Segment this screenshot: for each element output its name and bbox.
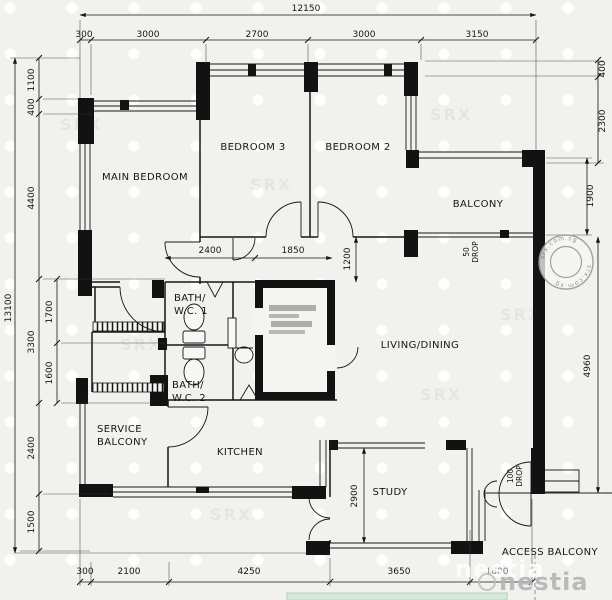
srx-pattern-text: SRX [420, 385, 462, 404]
dim-left-2400: 2400 [27, 436, 37, 459]
dim-study-2900: 2900 [350, 484, 360, 507]
dim-right-4960: 4960 [583, 354, 593, 377]
dim-left-3300: 3300 [27, 330, 37, 353]
dim-left-400: 400 [27, 98, 37, 115]
shelter-door-arc [337, 347, 358, 368]
dim-shelter-1850: 1850 [282, 246, 305, 256]
dim-right-2300: 2300 [598, 109, 608, 132]
dim-hall-1200: 1200 [343, 247, 353, 270]
toilet-tank [183, 347, 205, 359]
dim-top-300: 300 [75, 30, 92, 40]
dim-bottom-4250: 4250 [238, 567, 261, 577]
dim-bath-2400: 2400 [199, 246, 222, 256]
nestia-brand-text: nestia [499, 568, 589, 596]
room-label-balcony: BALCONY [453, 199, 504, 210]
dim-left-1700: 1700 [45, 300, 55, 323]
srx-pattern-text: SRX [120, 335, 162, 354]
entrance-drop-word: DROP [515, 465, 524, 487]
room-label-bath1: BATH/ [174, 293, 206, 304]
bath1-door-swing [207, 282, 223, 297]
room-label-service-balcony: SERVICE [97, 424, 142, 435]
bedroom2-door-arc [318, 202, 353, 237]
entrance-drop-value: 100 [506, 469, 515, 484]
room-label-main-bedroom: MAIN BEDROOM [102, 172, 188, 183]
household-shelter [253, 280, 337, 400]
bedroom3-door-arc [266, 202, 301, 237]
dim-left-1600: 1600 [45, 361, 55, 384]
room-label-kitchen: KITCHEN [217, 447, 263, 458]
wash-basin [235, 347, 253, 363]
dim-top-2700: 2700 [246, 30, 269, 40]
main-bedroom-door-arc [165, 242, 200, 277]
floor-plan-image: SRX SRX SRX SRX SRX SRX SRX [0, 0, 612, 600]
dim-right-400: 400 [598, 60, 608, 77]
srx-pattern-text: SRX [250, 175, 292, 194]
dim-left-4400: 4400 [27, 186, 37, 209]
room-label-bath2-2: W.C. 2 [172, 393, 206, 404]
dim-top-3000a: 3000 [137, 30, 160, 40]
dim-top-3150: 3150 [466, 30, 489, 40]
dim-bottom-300: 300 [76, 567, 93, 577]
dim-bottom-2100: 2100 [118, 567, 141, 577]
room-label-study: STUDY [372, 487, 408, 498]
balcony-drop-word: DROP [471, 241, 480, 263]
dim-left-total: 13100 [4, 293, 14, 322]
dim-left-1100: 1100 [27, 68, 37, 91]
dim-top-total: 12150 [292, 4, 321, 14]
service-balcony-door-arc [168, 407, 208, 447]
srx-stamp-watermark: srx.com.sg srx.com.sg [539, 235, 593, 289]
green-watermark-bar [287, 593, 507, 600]
study-door-arc [309, 519, 330, 540]
nestia-watermark: nestia nestia [455, 555, 589, 596]
dim-left-1500: 1500 [27, 510, 37, 533]
dim-right-1900: 1900 [586, 184, 596, 207]
room-label-living-dining: LIVING/DINING [381, 340, 459, 351]
floor-plan-drawing: SRX SRX SRX SRX SRX SRX SRX [0, 0, 612, 600]
room-label-bedroom2: BEDROOM 2 [325, 142, 390, 153]
vanity-counter [228, 318, 236, 348]
room-labels: MAIN BEDROOM BEDROOM 3 BEDROOM 2 BALCONY… [97, 142, 599, 558]
room-label-service-balcony-2: BALCONY [97, 437, 148, 448]
room-label-bath1-2: W.C. 1 [174, 306, 208, 317]
louvre-window [93, 383, 164, 392]
dim-bottom-3650: 3650 [388, 567, 411, 577]
balcony-drop-value: 50 [462, 247, 471, 257]
hall-door-arc [233, 238, 255, 260]
entrance-leaf-arc [484, 481, 497, 507]
louvre-window [93, 322, 164, 331]
study-door-arc [309, 497, 330, 518]
room-label-bath2: BATH/ [172, 380, 204, 391]
srx-pattern-text: SRX [210, 505, 252, 524]
dim-top-3000b: 3000 [353, 30, 376, 40]
srx-pattern-text: SRX [430, 105, 472, 124]
toilet-tank [183, 331, 205, 343]
room-label-bedroom3: BEDROOM 3 [220, 142, 285, 153]
